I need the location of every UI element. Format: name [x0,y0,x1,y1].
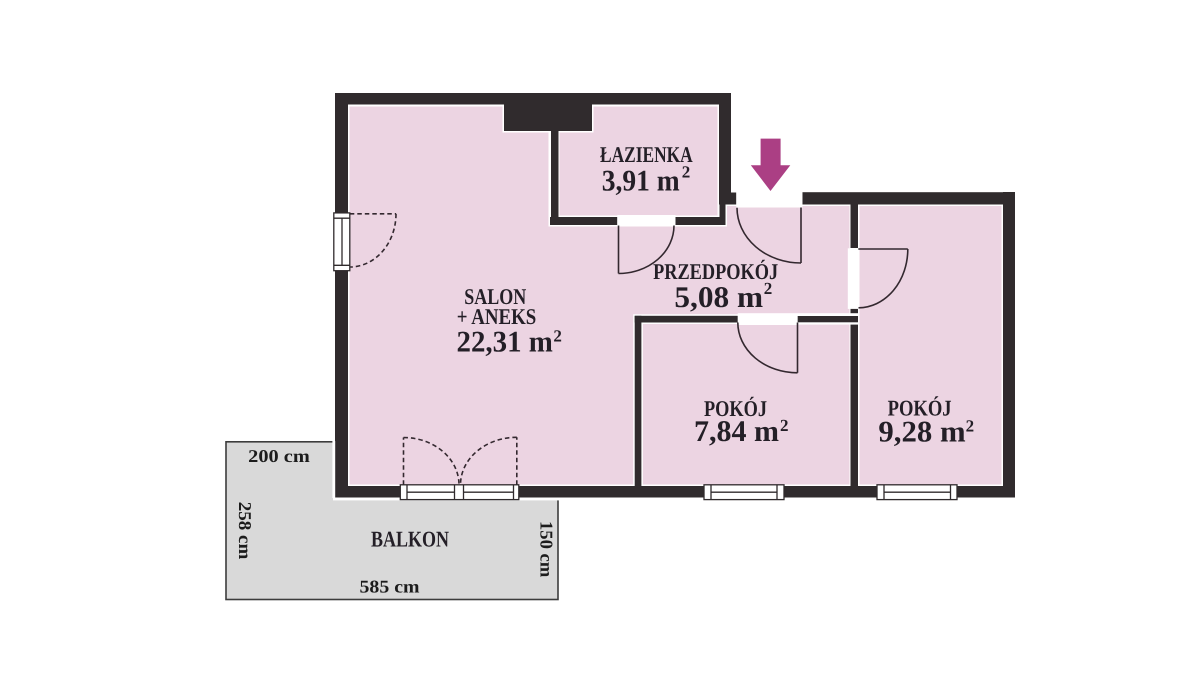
svg-text:2: 2 [780,416,789,435]
svg-text:2: 2 [764,279,773,298]
svg-text:585 cm: 585 cm [360,577,420,597]
svg-text:9,28 m: 9,28 m [878,415,965,448]
svg-text:3,91 m: 3,91 m [602,164,680,197]
svg-text:5,08 m: 5,08 m [674,281,763,314]
svg-text:22,31 m: 22,31 m [457,325,553,358]
svg-text:7,84 m: 7,84 m [694,415,779,448]
svg-text:2: 2 [682,162,691,181]
svg-text:2: 2 [553,326,562,345]
svg-text:200 cm: 200 cm [248,446,310,466]
svg-text:BALKON: BALKON [371,527,449,552]
svg-text:150 cm: 150 cm [537,521,557,577]
svg-text:258 cm: 258 cm [235,502,255,560]
svg-text:2: 2 [966,416,975,435]
